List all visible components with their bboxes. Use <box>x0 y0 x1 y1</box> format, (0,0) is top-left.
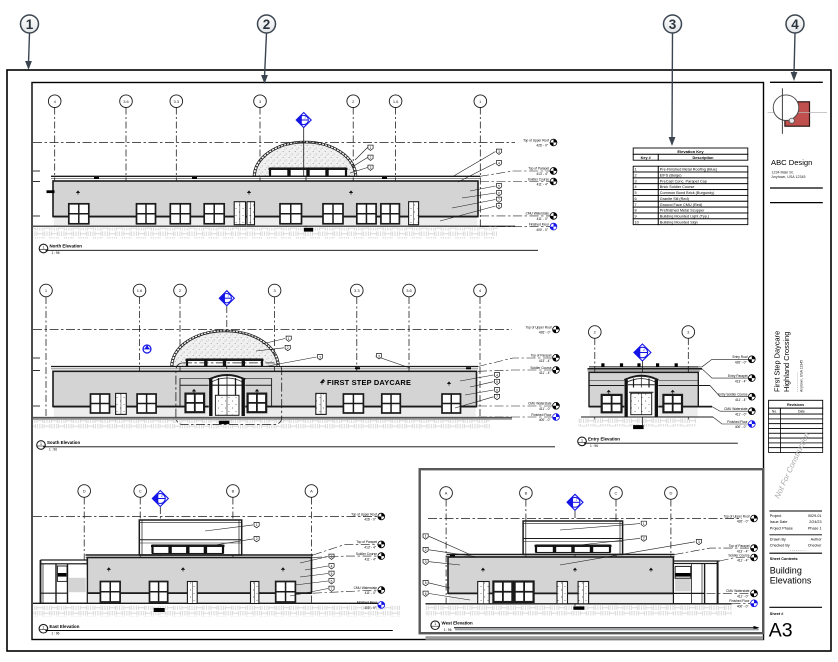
svg-text:Building: Building <box>770 566 802 576</box>
svg-text:Soldier Course: Soldier Course <box>528 177 549 181</box>
svg-text:411' - 4": 411' - 4" <box>737 559 748 563</box>
svg-text:Checked By: Checked By <box>770 543 790 547</box>
svg-text:5: 5 <box>425 581 427 585</box>
svg-text:7: 7 <box>331 587 333 591</box>
svg-text:1 : 96: 1 : 96 <box>444 628 452 632</box>
svg-text:Sheet #: Sheet # <box>770 612 784 616</box>
svg-text:Entry Elevation: Entry Elevation <box>588 437 620 442</box>
svg-text:2: 2 <box>256 537 258 541</box>
svg-text:5: 5 <box>498 184 500 188</box>
svg-text:Elevation Key: Elevation Key <box>677 149 704 154</box>
svg-text:Top of Parapet: Top of Parapet <box>729 544 750 548</box>
svg-text:6: 6 <box>498 191 500 195</box>
svg-text:Date: Date <box>798 410 805 414</box>
svg-text:10: 10 <box>635 220 639 224</box>
svg-text:Granite Sill (Red): Granite Sill (Red) <box>660 197 690 201</box>
svg-text:Description: Description <box>693 156 715 160</box>
svg-text:411' - 4": 411' - 4" <box>537 183 548 187</box>
svg-text:Entry Roof: Entry Roof <box>732 355 747 359</box>
svg-text:3.6: 3.6 <box>406 288 412 293</box>
svg-text:Highland Crossing: Highland Crossing <box>782 332 791 392</box>
svg-text:5: 5 <box>498 204 500 208</box>
svg-text:CMU Waterstate: CMU Waterstate <box>726 589 750 593</box>
svg-text:Soldier Course: Soldier Course <box>728 553 749 557</box>
svg-text:1 : 96: 1 : 96 <box>590 444 598 448</box>
svg-text:FIRST STEP DAYCARE: FIRST STEP DAYCARE <box>327 378 411 387</box>
svg-text:426' - 0": 426' - 0" <box>536 144 548 148</box>
svg-text:Project Phase: Project Phase <box>770 527 793 531</box>
svg-text:1: 1 <box>42 626 44 630</box>
svg-text:Entry Soldier Course: Entry Soldier Course <box>718 393 748 397</box>
svg-text:2: 2 <box>635 174 637 178</box>
svg-text:5: 5 <box>331 572 333 576</box>
svg-text:Top of Parapet: Top of Parapet <box>531 354 552 358</box>
svg-text:C: C <box>615 491 618 496</box>
svg-text:Author: Author <box>811 538 823 542</box>
svg-text:4: 4 <box>498 161 500 165</box>
svg-text:413' - 4": 413' - 4" <box>735 379 747 383</box>
svg-text:6: 6 <box>425 592 427 596</box>
svg-text:Top of Parapet: Top of Parapet <box>528 167 549 171</box>
svg-text:6: 6 <box>635 197 637 201</box>
svg-text:Soldier Course: Soldier Course <box>530 366 551 370</box>
svg-text:426' - 0": 426' - 0" <box>737 520 749 524</box>
svg-text:426' - 0": 426' - 0" <box>364 518 376 522</box>
svg-text:Entry Parapet: Entry Parapet <box>728 374 748 378</box>
svg-text:413' - 4": 413' - 4" <box>364 546 376 550</box>
svg-text:1 : 96: 1 : 96 <box>51 631 59 635</box>
svg-text:3: 3 <box>635 179 637 183</box>
svg-text:A3: A3 <box>769 620 793 642</box>
svg-text:Anytown, USA 12345: Anytown, USA 12345 <box>772 175 806 179</box>
svg-text:6: 6 <box>496 388 498 392</box>
svg-text:400' - 0": 400' - 0" <box>364 606 376 610</box>
svg-text:1 : 96: 1 : 96 <box>49 448 57 452</box>
svg-text:413' - 4": 413' - 4" <box>539 359 551 363</box>
svg-text:1: 1 <box>370 146 372 150</box>
svg-text:411' - 4": 411' - 4" <box>735 398 746 402</box>
svg-text:400' - 0": 400' - 0" <box>539 418 551 422</box>
svg-text:3.3: 3.3 <box>354 288 360 293</box>
svg-text:3: 3 <box>669 17 677 32</box>
svg-text:4: 4 <box>331 564 333 568</box>
svg-text:Finished Floor: Finished Floor <box>357 601 378 605</box>
svg-text:Finished Floor: Finished Floor <box>531 413 552 417</box>
svg-text:5: 5 <box>496 380 498 384</box>
svg-text:7: 7 <box>635 203 637 207</box>
svg-text:Checker: Checker <box>808 543 823 547</box>
svg-text:Soldier Course: Soldier Course <box>356 552 377 556</box>
svg-text:CMU Waterstate: CMU Waterstate <box>528 402 552 406</box>
svg-text:1: 1 <box>425 535 427 539</box>
svg-text:Project: Project <box>770 514 781 518</box>
svg-text:1: 1 <box>43 246 45 250</box>
svg-text:1.6: 1.6 <box>137 288 143 293</box>
svg-text:2: 2 <box>425 548 427 552</box>
svg-text:411' - 0": 411' - 0" <box>735 412 746 416</box>
svg-text:3.3: 3.3 <box>174 99 180 104</box>
svg-text:Key #: Key # <box>641 156 652 160</box>
svg-text:Elevations: Elevations <box>770 576 812 586</box>
svg-text:2: 2 <box>643 537 645 541</box>
svg-text:1: 1 <box>288 337 290 341</box>
svg-text:Brick Soldier Course: Brick Soldier Course <box>660 185 695 189</box>
svg-text:A: A <box>445 491 448 496</box>
svg-text:Common Bond Brick (Burgundy): Common Bond Brick (Burgundy) <box>660 191 715 195</box>
svg-text:Top of Upper Roof: Top of Upper Roof <box>526 325 552 329</box>
svg-text:Top of Parapet: Top of Parapet <box>356 540 377 544</box>
svg-text:CMU Waterstate: CMU Waterstate <box>354 586 378 590</box>
svg-text:Finished Floor: Finished Floor <box>727 420 748 424</box>
svg-text:400' - 0": 400' - 0" <box>737 605 749 609</box>
svg-text:Building Mounted Light (Typ.): Building Mounted Light (Typ.) <box>660 215 710 219</box>
svg-text:Top of Upper Roof: Top of Upper Roof <box>523 138 549 142</box>
svg-text:426' - 0": 426' - 0" <box>735 361 747 365</box>
svg-text:3: 3 <box>370 166 372 170</box>
svg-text:1: 1 <box>256 523 258 527</box>
svg-text:4: 4 <box>496 373 498 377</box>
svg-text:0029-01: 0029-01 <box>808 514 822 518</box>
svg-text:2/24/23: 2/24/23 <box>809 520 821 524</box>
svg-text:Phase 1: Phase 1 <box>808 527 822 531</box>
svg-text:411' - 0": 411' - 0" <box>539 407 550 411</box>
svg-text:7: 7 <box>498 198 500 202</box>
svg-text:Drawn By: Drawn By <box>770 538 786 542</box>
svg-text:411' - 0": 411' - 0" <box>365 591 376 595</box>
svg-text:3: 3 <box>698 540 700 544</box>
svg-text:8: 8 <box>635 209 637 213</box>
svg-text:6: 6 <box>331 579 333 583</box>
svg-text:3: 3 <box>319 355 321 359</box>
svg-text:5: 5 <box>635 191 637 195</box>
svg-text:B: B <box>232 489 235 494</box>
svg-text:PreCast Conc. Parapet Cap: PreCast Conc. Parapet Cap <box>660 179 707 183</box>
svg-text:Sheet Contents: Sheet Contents <box>770 557 798 561</box>
svg-text:413' - 4": 413' - 4" <box>536 172 548 176</box>
svg-text:2: 2 <box>287 346 289 350</box>
svg-text:C: C <box>139 489 142 494</box>
svg-text:1234 Main St.: 1234 Main St. <box>772 171 794 175</box>
svg-text:411' - 4": 411' - 4" <box>365 557 376 561</box>
svg-text:First Step Daycare: First Step Daycare <box>773 331 782 392</box>
svg-text:Top of Upper Roof: Top of Upper Roof <box>351 512 377 516</box>
svg-text:North Elevation: North Elevation <box>50 244 83 249</box>
svg-text:B: B <box>525 491 528 496</box>
svg-text:2: 2 <box>370 156 372 160</box>
svg-text:- - - - - - - -: - - - - - - - - <box>790 548 806 552</box>
svg-text:EIFS (Beige): EIFS (Beige) <box>660 174 682 178</box>
svg-text:CMU Waterstate: CMU Waterstate <box>526 212 550 216</box>
svg-text:ABC Design: ABC Design <box>771 158 812 167</box>
svg-text:1: 1 <box>635 168 637 172</box>
svg-text:411' - 0": 411' - 0" <box>537 217 548 221</box>
svg-text:3: 3 <box>378 354 380 358</box>
svg-text:400' - 0": 400' - 0" <box>735 425 747 429</box>
svg-text:2: 2 <box>263 17 271 32</box>
svg-text:1 : 96: 1 : 96 <box>52 251 60 255</box>
svg-text:400' - 0": 400' - 0" <box>536 228 548 232</box>
svg-text:A: A <box>310 489 313 494</box>
svg-text:7: 7 <box>496 395 498 399</box>
svg-text:Prefinished Metal Scupper: Prefinished Metal Scupper <box>660 209 705 213</box>
svg-text:3: 3 <box>498 150 500 154</box>
svg-text:Top of Upper Roof: Top of Upper Roof <box>724 514 750 518</box>
svg-text:Revisions: Revisions <box>787 403 804 407</box>
svg-text:CMU Waterstate: CMU Waterstate <box>724 407 748 411</box>
svg-text:Finished Floor: Finished Floor <box>529 222 550 226</box>
svg-text:No.: No. <box>772 410 777 414</box>
svg-text:9: 9 <box>635 215 637 219</box>
svg-text:Building Mounted Sign: Building Mounted Sign <box>660 220 698 224</box>
svg-text:Ground Face CMU (Red): Ground Face CMU (Red) <box>660 203 703 207</box>
svg-text:3.6: 3.6 <box>123 99 129 104</box>
svg-text:- - - - - - - - - -: - - - - - - - - - - <box>795 372 799 392</box>
svg-text:3: 3 <box>425 560 427 564</box>
svg-text:1: 1 <box>581 438 583 442</box>
svg-text:1.6: 1.6 <box>393 99 399 104</box>
svg-text:Anytown, USA 12345: Anytown, USA 12345 <box>800 360 804 392</box>
svg-text:South Elevation: South Elevation <box>47 440 80 445</box>
svg-text:411' - 4": 411' - 4" <box>539 371 550 375</box>
svg-text:Issue Date: Issue Date <box>770 520 788 524</box>
svg-text:1: 1 <box>434 622 436 626</box>
svg-text:4: 4 <box>635 185 637 189</box>
svg-text:Pre-Finished Metal Roofing (Bl: Pre-Finished Metal Roofing (Blue) <box>660 168 718 172</box>
svg-text:East Elevation: East Elevation <box>49 624 79 629</box>
svg-text:1: 1 <box>40 442 42 446</box>
svg-text:D: D <box>83 489 86 494</box>
svg-text:West Elevation: West Elevation <box>442 620 473 625</box>
svg-text:1: 1 <box>26 17 34 32</box>
svg-text:D: D <box>669 491 672 496</box>
svg-text:426' - 0": 426' - 0" <box>539 331 551 335</box>
svg-text:1: 1 <box>643 522 645 526</box>
svg-text:Finished Floor: Finished Floor <box>729 599 750 603</box>
svg-text:4: 4 <box>791 17 799 32</box>
svg-text:411' - 0": 411' - 0" <box>737 595 748 599</box>
